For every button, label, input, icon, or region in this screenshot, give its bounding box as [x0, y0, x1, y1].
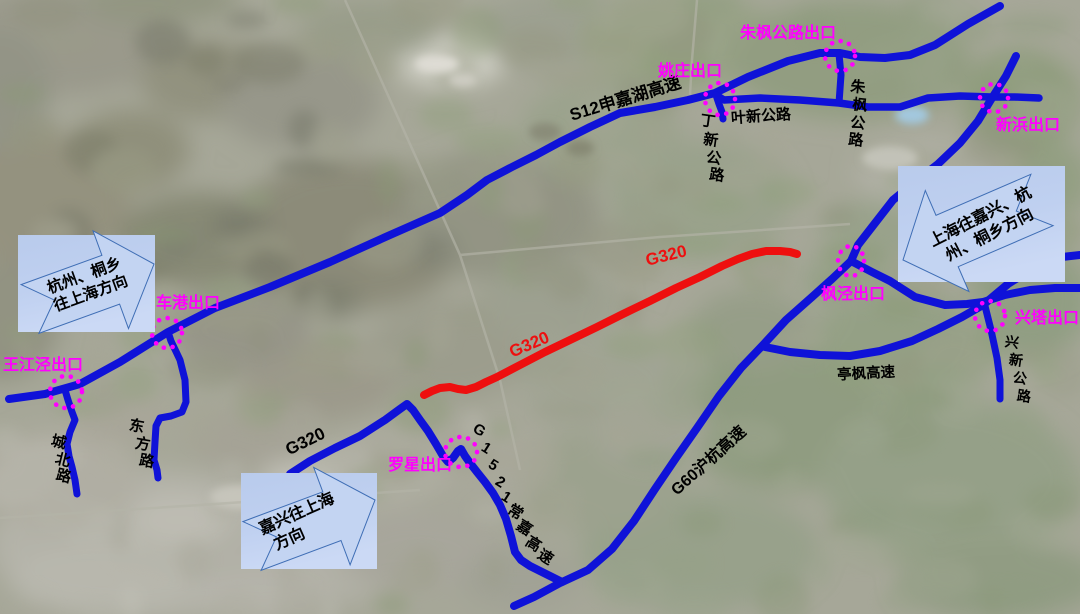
svg-text:罗星出口: 罗星出口	[388, 455, 452, 474]
svg-text:枫: 枫	[851, 95, 868, 114]
svg-text:王江泾出口: 王江泾出口	[3, 355, 83, 374]
svg-text:兴塔出口: 兴塔出口	[1015, 308, 1079, 327]
svg-text:车港出口: 车港出口	[156, 293, 220, 312]
svg-text:方: 方	[134, 434, 152, 454]
svg-text:姚庄出口: 姚庄出口	[657, 61, 722, 80]
svg-text:公: 公	[849, 114, 866, 132]
svg-text:新: 新	[1008, 351, 1024, 369]
svg-text:公: 公	[705, 149, 722, 168]
svg-text:新: 新	[702, 130, 719, 150]
svg-text:朱枫公路出口: 朱枫公路出口	[740, 23, 836, 42]
svg-text:兴: 兴	[1004, 333, 1020, 351]
svg-text:新浜出口: 新浜出口	[996, 115, 1060, 134]
svg-text:路: 路	[847, 130, 865, 150]
svg-text:朱: 朱	[850, 77, 868, 97]
svg-text:枫泾出口: 枫泾出口	[821, 284, 885, 303]
svg-text:丁: 丁	[699, 112, 716, 131]
svg-text:东: 东	[128, 416, 146, 436]
svg-text:公: 公	[1012, 369, 1028, 387]
